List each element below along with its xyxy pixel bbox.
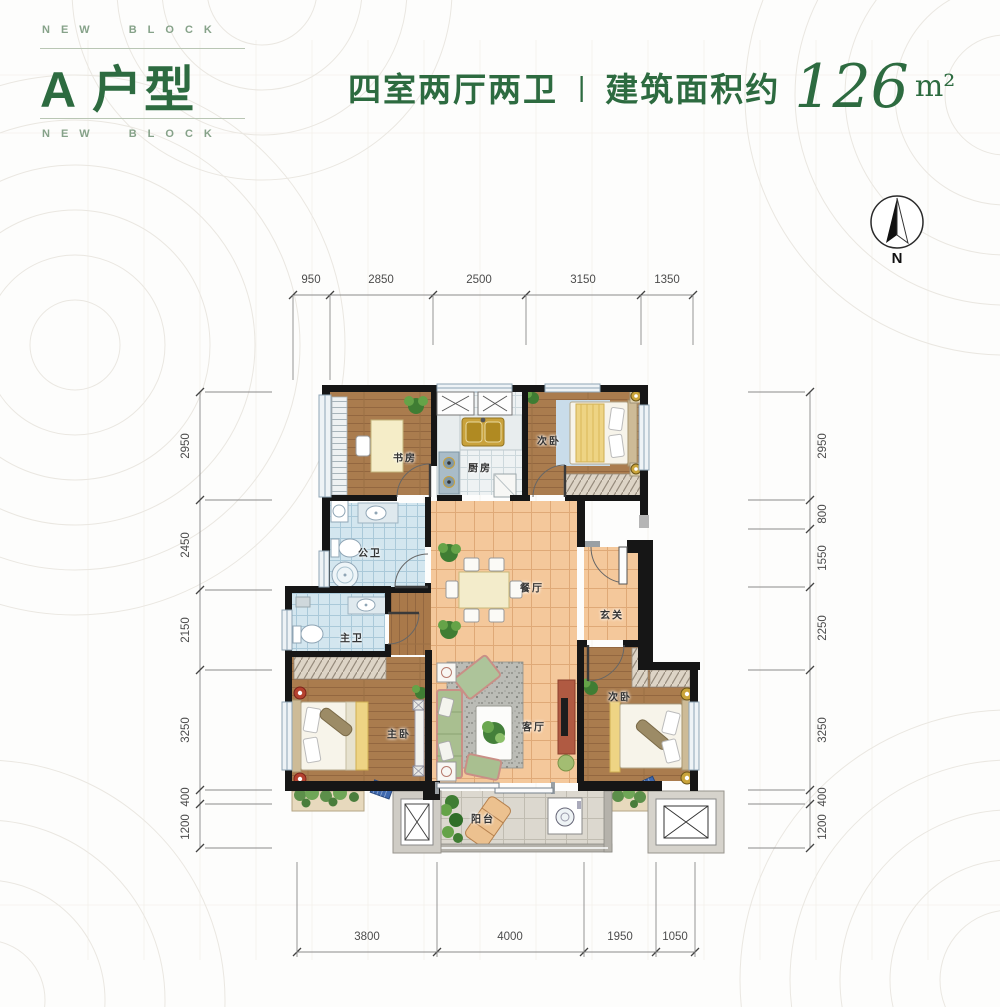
room-label-bedroom-top: 次卧 — [537, 433, 561, 448]
compass-north-label: N — [889, 250, 905, 267]
dimension-label: 4000 — [497, 931, 523, 943]
room-label-study: 书房 — [393, 450, 417, 465]
area-value: 126 — [794, 57, 909, 117]
left-shaft — [393, 791, 441, 853]
dimension-label: 3150 — [570, 274, 596, 286]
header-divider-bottom — [40, 118, 245, 119]
headline-separator: | — [578, 71, 585, 103]
dimension-label: 1550 — [817, 545, 829, 571]
dimension-label: 2850 — [368, 274, 394, 286]
room-label-guest-bath: 公卫 — [358, 545, 382, 560]
dimension-label: 1050 — [662, 931, 688, 943]
floor-plan-drawing — [0, 0, 1000, 1007]
elevator — [648, 791, 724, 853]
dimension-label: 400 — [817, 787, 829, 806]
area-prefix: 建筑面积约 — [605, 63, 780, 111]
dimension-label: 1200 — [817, 814, 829, 840]
dimension-label: 1950 — [607, 931, 633, 943]
room-label-kitchen: 厨房 — [468, 460, 492, 475]
dimension-label: 3800 — [354, 931, 380, 943]
brand-text-top: NEW BLOCK — [42, 24, 223, 36]
room-label-balcony: 阳台 — [471, 811, 495, 826]
dimension-label: 2500 — [466, 274, 492, 286]
rooms-info: 四室两厅两卫 — [348, 63, 558, 111]
brand-text-bottom: NEW BLOCK — [42, 128, 223, 140]
plan-headline: 四室两厅两卫 | 建筑面积约 126 m² — [348, 56, 955, 118]
dimension-label: 1350 — [654, 274, 680, 286]
room-label-bedroom-bottom: 次卧 — [608, 689, 632, 704]
floor-plan-page: NEW BLOCK A 户型 NEW BLOCK 四室两厅两卫 | 建筑面积约 … — [0, 0, 1000, 1007]
kitchen-flues — [437, 392, 512, 415]
dimension-label: 3250 — [180, 717, 192, 743]
room-label-master-bath: 主卫 — [340, 630, 364, 645]
dimension-label: 2950 — [817, 433, 829, 459]
room-label-master-bedroom: 主卧 — [387, 726, 411, 741]
dimension-label: 2950 — [180, 433, 192, 459]
compass-icon — [871, 196, 923, 248]
dimension-label: 2150 — [180, 617, 192, 643]
header-divider-top — [40, 48, 245, 49]
dimension-label: 400 — [180, 787, 192, 806]
dimension-label: 950 — [301, 274, 320, 286]
dimension-label: 2450 — [180, 532, 192, 558]
dimension-label: 800 — [817, 504, 829, 523]
dimension-label: 1200 — [180, 814, 192, 840]
room-label-living: 客厅 — [522, 719, 546, 734]
area-unit: m² — [915, 72, 955, 102]
unit-title: A 户型 — [40, 50, 196, 122]
dimension-label: 3250 — [817, 717, 829, 743]
room-label-foyer: 玄关 — [600, 607, 624, 622]
dimension-label: 2250 — [817, 615, 829, 641]
room-label-dining: 餐厅 — [520, 580, 544, 595]
